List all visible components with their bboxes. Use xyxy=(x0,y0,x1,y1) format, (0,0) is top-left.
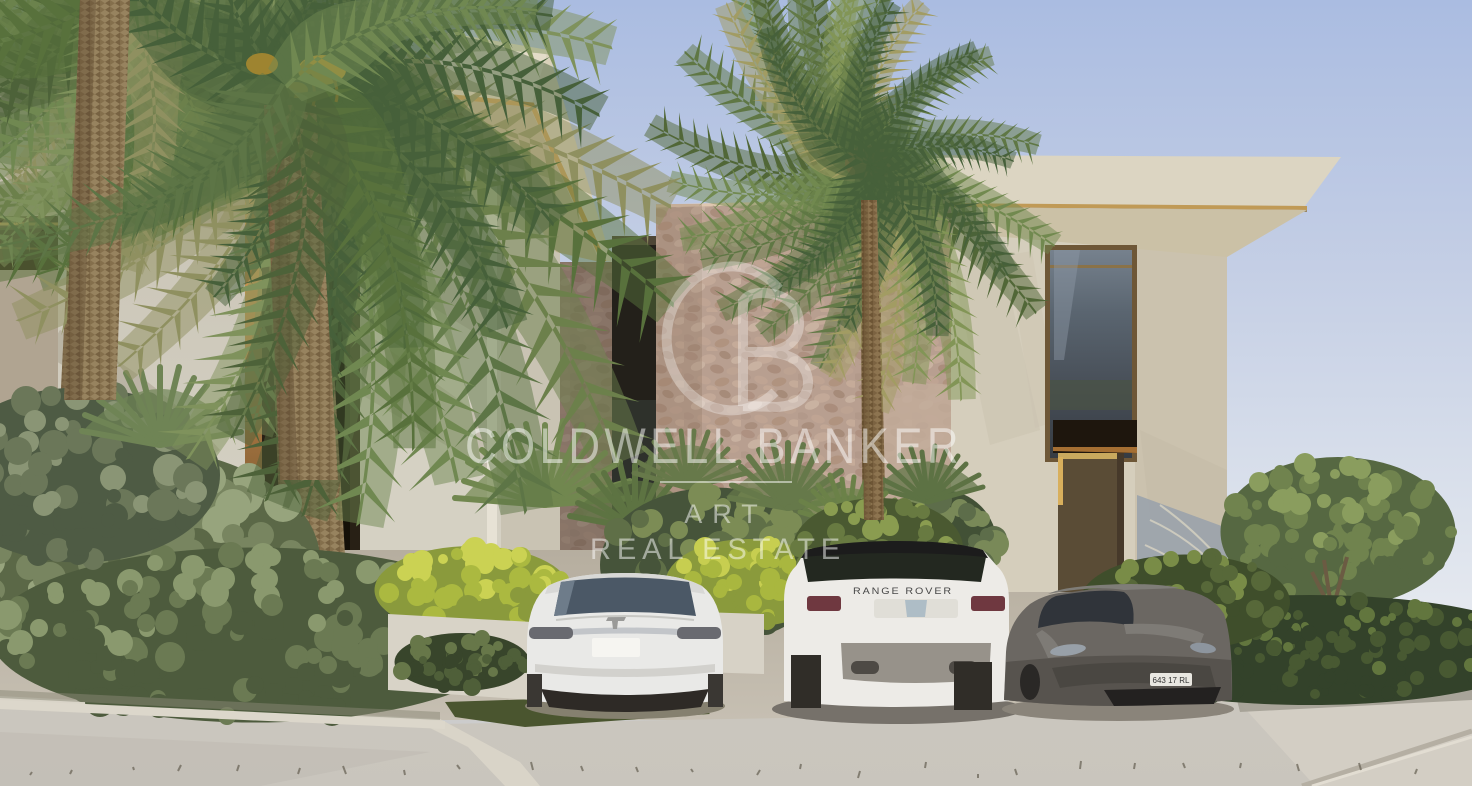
svg-text:REAL ESTATE: REAL ESTATE xyxy=(590,533,846,566)
svg-text:COLDWELL BANKER: COLDWELL BANKER xyxy=(465,418,963,474)
svg-text:ART: ART xyxy=(684,499,768,529)
svg-text:643 17 RL: 643 17 RL xyxy=(1153,676,1190,685)
svg-text:RANGE ROVER: RANGE ROVER xyxy=(853,586,953,596)
